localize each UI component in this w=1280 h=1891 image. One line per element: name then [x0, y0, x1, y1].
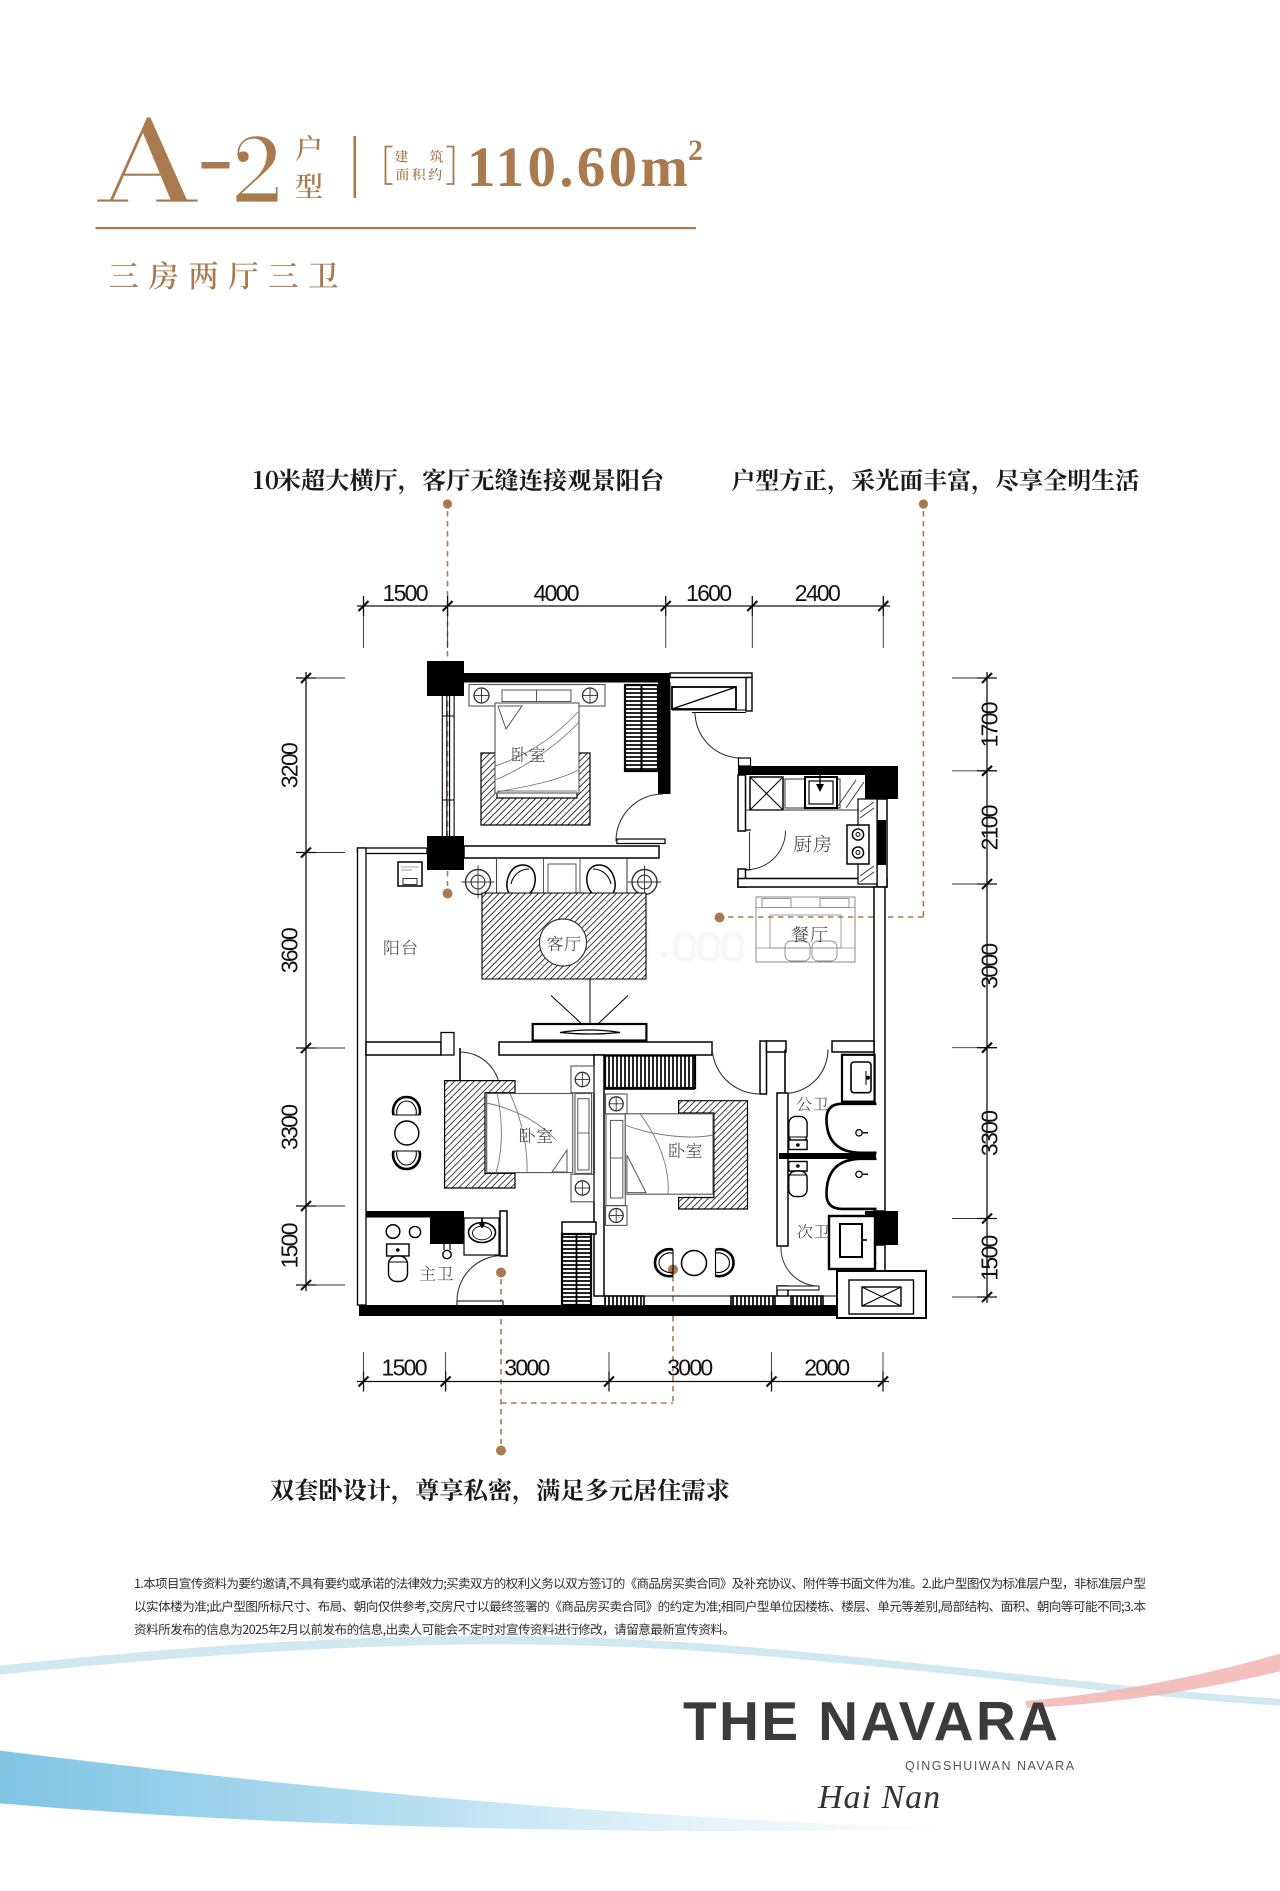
svg-text:110.60m: 110.60m — [467, 136, 691, 199]
svg-text:3000: 3000 — [504, 1355, 550, 1381]
svg-text:3200: 3200 — [277, 742, 303, 788]
svg-text:THE NAVARA: THE NAVARA — [683, 1690, 1060, 1752]
svg-text:1500: 1500 — [277, 1223, 303, 1269]
svg-text:3600: 3600 — [277, 927, 303, 973]
svg-text:2100: 2100 — [977, 804, 1003, 850]
svg-text:3000: 3000 — [667, 1355, 713, 1381]
svg-text:3300: 3300 — [277, 1104, 303, 1150]
svg-text:1600: 1600 — [686, 580, 732, 606]
svg-text:3000: 3000 — [977, 943, 1003, 989]
svg-text:QINGSHUIWAN NAVARA: QINGSHUIWAN NAVARA — [905, 1759, 1076, 1773]
svg-text:3300: 3300 — [977, 1110, 1003, 1156]
svg-text:2400: 2400 — [795, 580, 841, 606]
svg-text:2000: 2000 — [804, 1355, 850, 1381]
svg-text:1500: 1500 — [977, 1235, 1003, 1281]
svg-text:4000: 4000 — [534, 580, 580, 606]
svg-text:1700: 1700 — [977, 701, 1003, 747]
svg-text:1500: 1500 — [382, 1355, 428, 1381]
svg-text:Hai Nan: Hai Nan — [817, 1779, 941, 1816]
svg-text:2: 2 — [688, 134, 703, 167]
svg-text:1500: 1500 — [383, 580, 429, 606]
